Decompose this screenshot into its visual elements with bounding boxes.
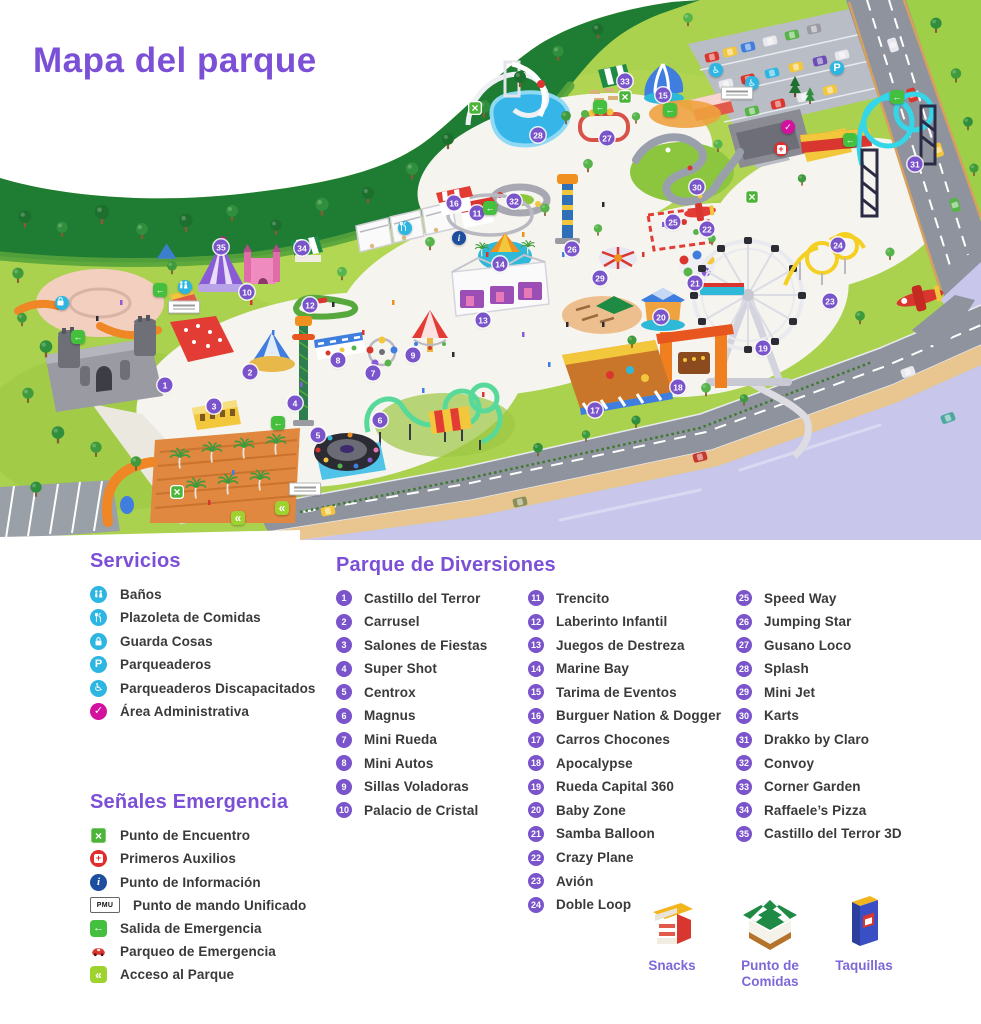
map-marker-29: 29 xyxy=(593,271,608,286)
map-marker-21: 21 xyxy=(688,276,703,291)
legend-item-area-administrativa: ✓Área Administrativa xyxy=(90,703,316,720)
ride-number-badge: 33 xyxy=(736,779,752,795)
banos-icon xyxy=(90,586,107,603)
ride-item-tarima-de-eventos: 15Tarima de Eventos xyxy=(528,684,736,700)
ride-item-rueda-capital-360: 19Rueda Capital 360 xyxy=(528,779,736,795)
map-marker-1: 1 xyxy=(158,378,173,393)
legend-item-plazoleta-de-comidas: Plazoleta de Comidas xyxy=(90,609,316,626)
ride-item-corner-garden: 33Corner Garden xyxy=(736,779,956,795)
servicios-heading: Servicios xyxy=(90,550,316,573)
ride-item-label: Drakko by Claro xyxy=(764,732,869,747)
map-salida-icon: ← xyxy=(271,416,285,430)
map-sign-icon xyxy=(168,301,200,314)
ride-item-label: Karts xyxy=(764,708,799,723)
ride-item-mini-rueda: 7Mini Rueda xyxy=(336,732,528,748)
ride-item-label: Laberinto Infantil xyxy=(556,614,667,629)
map-marker-10: 10 xyxy=(240,285,255,300)
map-marker-9: 9 xyxy=(406,348,421,363)
map-marker-12: 12 xyxy=(303,298,318,313)
map-marker-35: 35 xyxy=(214,240,229,255)
ride-number-badge: 13 xyxy=(528,637,544,653)
ride-item-laberinto-infantil: 12Laberinto Infantil xyxy=(528,614,736,630)
ride-item-label: Mini Autos xyxy=(364,756,434,771)
map-guarda-icon xyxy=(55,296,69,310)
map-auxilios-icon: + xyxy=(774,142,788,156)
auxilios-icon: + xyxy=(90,850,107,867)
map-sign-icon xyxy=(721,87,753,100)
map-marker-32: 32 xyxy=(507,194,522,209)
ride-number-badge: 9 xyxy=(336,779,352,795)
map-marker-6: 6 xyxy=(373,413,388,428)
ride-item-label: Palacio de Cristal xyxy=(364,803,478,818)
ride-item-super-shot: 4Super Shot xyxy=(336,661,528,677)
ride-item-magnus: 6Magnus xyxy=(336,708,528,724)
map-salida-icon: ← xyxy=(843,133,857,147)
snacks-icon xyxy=(647,896,697,950)
ride-item-mini-autos: 8Mini Autos xyxy=(336,755,528,771)
ride-number-badge: 23 xyxy=(528,873,544,889)
ride-item-mini-jet: 29Mini Jet xyxy=(736,684,956,700)
legend-atracciones: Parque de Diversiones 1Castillo del Terr… xyxy=(336,554,956,920)
legend-item-label: Plazoleta de Comidas xyxy=(120,610,261,625)
ride-item-label: Magnus xyxy=(364,708,416,723)
legend-item-parqueaderos-discapacitados: ♿Parqueaderos Discapacitados xyxy=(90,680,316,697)
legend-item-label: Parqueaderos xyxy=(120,657,211,672)
emergencia-heading: Señales Emergencia xyxy=(90,791,306,814)
kiosk-snacks-label: Snacks xyxy=(648,958,695,974)
map-marker-18: 18 xyxy=(671,380,686,395)
parqueadero-icon: P xyxy=(90,656,107,673)
ride-item-carrusel: 2Carrusel xyxy=(336,614,528,630)
map-encuentro-icon: × xyxy=(618,90,632,104)
map-discapacitados-icon: ♿ xyxy=(709,63,723,77)
ride-number-badge: 22 xyxy=(528,850,544,866)
ride-item-samba-balloon: 21Samba Balloon xyxy=(528,826,736,842)
map-marker-28: 28 xyxy=(531,128,546,143)
legend-item-label: Primeros Auxilios xyxy=(120,851,236,866)
salida-icon: ← xyxy=(90,920,107,937)
legend-item-banos: Baños xyxy=(90,586,316,603)
ride-item-label: Carrusel xyxy=(364,614,420,629)
map-marker-34: 34 xyxy=(295,241,310,256)
ride-item-label: Crazy Plane xyxy=(556,850,634,865)
ride-item-label: Burguer Nation & Dogger xyxy=(556,708,721,723)
legend-item-label: Salida de Emergencia xyxy=(120,921,262,936)
ride-item-raffaele-s-pizza: 34Raffaele’s Pizza xyxy=(736,802,956,818)
ride-number-badge: 20 xyxy=(528,802,544,818)
ride-number-badge: 4 xyxy=(336,661,352,677)
pmu-icon: PMU xyxy=(90,897,120,913)
ride-number-badge: 32 xyxy=(736,755,752,771)
legend-item-acceso-al-parque: «Acceso al Parque xyxy=(90,966,306,983)
ride-item-avion: 23Avión xyxy=(528,873,736,889)
map-marker-24: 24 xyxy=(831,238,846,253)
map-salida-icon: ← xyxy=(663,103,677,117)
legend-item-guarda-cosas: Guarda Cosas xyxy=(90,633,316,650)
legend-item-label: Área Administrativa xyxy=(120,704,249,719)
ride-item-splash: 28Splash xyxy=(736,661,956,677)
ride-item-gusano-loco: 27Gusano Loco xyxy=(736,637,956,653)
map-salida-icon: ← xyxy=(593,100,607,114)
map-marker-27: 27 xyxy=(600,131,615,146)
ride-item-centrox: 5Centrox xyxy=(336,684,528,700)
punto-comidas-icon xyxy=(741,898,799,950)
map-marker-13: 13 xyxy=(476,313,491,328)
ride-item-label: Avión xyxy=(556,874,594,889)
ride-number-badge: 18 xyxy=(528,755,544,771)
admin-icon: ✓ xyxy=(90,703,107,720)
ride-item-label: Splash xyxy=(764,661,809,676)
map-banos-icon xyxy=(178,280,192,294)
legend-emergencia: Señales Emergencia ×Punto de Encuentro+P… xyxy=(90,791,306,990)
legend-item-label: Acceso al Parque xyxy=(120,967,234,982)
ride-item-label: Castillo del Terror xyxy=(364,591,480,606)
map-marker-25: 25 xyxy=(666,215,681,230)
ride-number-badge: 6 xyxy=(336,708,352,724)
ride-item-label: Trencito xyxy=(556,591,609,606)
ride-item-trencito: 11Trencito xyxy=(528,590,736,606)
ride-item-label: Apocalypse xyxy=(556,756,633,771)
ride-item-juegos-de-destreza: 13Juegos de Destreza xyxy=(528,637,736,653)
ride-item-label: Doble Loop xyxy=(556,897,631,912)
map-encuentro-icon: × xyxy=(745,190,759,204)
ride-number-badge: 7 xyxy=(336,732,352,748)
map-marker-5: 5 xyxy=(311,428,326,443)
ride-number-badge: 15 xyxy=(528,684,544,700)
legend-item-label: Punto de Encuentro xyxy=(120,828,250,843)
ride-number-badge: 5 xyxy=(336,684,352,700)
map-marker-15: 15 xyxy=(656,88,671,103)
map-marker-22: 22 xyxy=(700,222,715,237)
map-marker-23: 23 xyxy=(823,294,838,309)
ride-number-badge: 14 xyxy=(528,661,544,677)
map-marker-31: 31 xyxy=(908,157,923,172)
ride-number-badge: 10 xyxy=(336,802,352,818)
ride-number-badge: 34 xyxy=(736,802,752,818)
taquillas-icon xyxy=(842,893,886,950)
ride-number-badge: 30 xyxy=(736,708,752,724)
ride-item-apocalypse: 18Apocalypse xyxy=(528,755,736,771)
ride-item-label: Tarima de Eventos xyxy=(556,685,677,700)
park-map-page: Mapa del parque xyxy=(0,0,981,1024)
ride-item-convoy: 32Convoy xyxy=(736,755,956,771)
map-marker-19: 19 xyxy=(756,341,771,356)
discapacitados-icon: ♿ xyxy=(90,680,107,697)
legend-item-label: Guarda Cosas xyxy=(120,634,213,649)
map-salida-icon: ← xyxy=(153,283,167,297)
ride-item-palacio-de-cristal: 10Palacio de Cristal xyxy=(336,802,528,818)
rides-column-1: 1Castillo del Terror2Carrusel3Salones de… xyxy=(336,590,528,826)
map-marker-20: 20 xyxy=(654,310,669,325)
ride-number-badge: 26 xyxy=(736,614,752,630)
ride-item-label: Corner Garden xyxy=(764,779,861,794)
legend-item-label: Parqueaderos Discapacitados xyxy=(120,681,316,696)
legend-item-parqueo-de-emergencia: Parqueo de Emergencia xyxy=(90,943,306,960)
map-marker-14: 14 xyxy=(493,257,508,272)
kiosk-snacks: Snacks xyxy=(630,896,714,974)
map-marker-7: 7 xyxy=(366,366,381,381)
ride-number-badge: 17 xyxy=(528,732,544,748)
ride-item-label: Raffaele’s Pizza xyxy=(764,803,866,818)
ride-item-label: Sillas Voladoras xyxy=(364,779,469,794)
ride-number-badge: 28 xyxy=(736,661,752,677)
legend-item-label: Parqueo de Emergencia xyxy=(120,944,276,959)
ride-number-badge: 3 xyxy=(336,637,352,653)
ride-item-label: Rueda Capital 360 xyxy=(556,779,674,794)
legend-item-label: Punto de mando Unificado xyxy=(133,898,306,913)
ride-number-badge: 21 xyxy=(528,826,544,842)
ride-number-badge: 16 xyxy=(528,708,544,724)
ride-number-badge: 1 xyxy=(336,590,352,606)
ride-item-karts: 30Karts xyxy=(736,708,956,724)
ride-item-crazy-plane: 22Crazy Plane xyxy=(528,850,736,866)
ride-item-label: Mini Rueda xyxy=(364,732,437,747)
map-marker-8: 8 xyxy=(331,353,346,368)
map-salida-icon: ← xyxy=(890,90,904,104)
map-marker-17: 17 xyxy=(588,403,603,418)
map-sign-icon xyxy=(289,483,321,496)
ride-number-badge: 24 xyxy=(528,897,544,913)
map-marker-30: 30 xyxy=(690,180,705,195)
legend-item-primeros-auxilios: +Primeros Auxilios xyxy=(90,850,306,867)
legend-item-salida-de-emergencia: ←Salida de Emergencia xyxy=(90,920,306,937)
ride-item-baby-zone: 20Baby Zone xyxy=(528,802,736,818)
ride-number-badge: 2 xyxy=(336,614,352,630)
ride-item-label: Speed Way xyxy=(764,591,836,606)
map-acceso-icon: « xyxy=(275,501,289,515)
atracciones-heading: Parque de Diversiones xyxy=(336,554,956,577)
ride-item-label: Juegos de Destreza xyxy=(556,638,685,653)
ride-item-salones-de-fiestas: 3Salones de Fiestas xyxy=(336,637,528,653)
ride-item-label: Baby Zone xyxy=(556,803,626,818)
map-comidas-icon xyxy=(398,221,412,235)
ride-number-badge: 19 xyxy=(528,779,544,795)
ride-item-jumping-star: 26Jumping Star xyxy=(736,614,956,630)
kiosk-taquillas-label: Taquillas xyxy=(835,958,893,974)
ride-item-label: Castillo del Terror 3D xyxy=(764,826,902,841)
ride-item-castillo-del-terror: 1Castillo del Terror xyxy=(336,590,528,606)
rides-column-2: 11Trencito12Laberinto Infantil13Juegos d… xyxy=(528,590,736,920)
map-salida-icon: ← xyxy=(483,201,497,215)
ride-item-label: Super Shot xyxy=(364,661,437,676)
ride-item-drakko-by-claro: 31Drakko by Claro xyxy=(736,732,956,748)
ride-number-badge: 31 xyxy=(736,732,752,748)
map-marker-16: 16 xyxy=(447,196,462,211)
parqueo_emergencia-icon xyxy=(90,943,107,960)
legend-item-punto-de-informacion: iPunto de Información xyxy=(90,874,306,891)
ride-number-badge: 27 xyxy=(736,637,752,653)
ride-item-label: Jumping Star xyxy=(764,614,851,629)
ride-item-label: Marine Bay xyxy=(556,661,629,676)
legend-item-punto-de-encuentro: ×Punto de Encuentro xyxy=(90,827,306,844)
comidas-icon xyxy=(90,609,107,626)
map-encuentro-icon: × xyxy=(170,485,184,499)
guarda-icon xyxy=(90,633,107,650)
map-marker-4: 4 xyxy=(288,396,303,411)
ride-number-badge: 29 xyxy=(736,684,752,700)
map-marker-2: 2 xyxy=(243,365,258,380)
map-informacion-icon: i xyxy=(452,231,466,245)
map-encuentro-icon: × xyxy=(468,101,482,115)
ride-item-label: Gusano Loco xyxy=(764,638,851,653)
kiosk-punto-comidas: Punto de Comidas xyxy=(728,898,812,990)
ride-item-marine-bay: 14Marine Bay xyxy=(528,661,736,677)
page-title: Mapa del parque xyxy=(33,41,317,81)
ride-item-burguer-nation-dogger: 16Burguer Nation & Dogger xyxy=(528,708,736,724)
map-marker-26: 26 xyxy=(565,242,580,257)
map-acceso-icon: « xyxy=(231,511,245,525)
ride-item-carros-chocones: 17Carros Chocones xyxy=(528,732,736,748)
informacion-icon: i xyxy=(90,874,107,891)
ride-item-castillo-del-terror-3d: 35Castillo del Terror 3D xyxy=(736,826,956,842)
ride-number-badge: 35 xyxy=(736,826,752,842)
map-admin-icon: ✓ xyxy=(781,120,795,134)
ride-item-sillas-voladoras: 9Sillas Voladoras xyxy=(336,779,528,795)
ride-item-label: Centrox xyxy=(364,685,416,700)
encuentro-icon: × xyxy=(90,827,107,844)
ride-item-label: Salones de Fiestas xyxy=(364,638,487,653)
ride-item-speed-way: 25Speed Way xyxy=(736,590,956,606)
kiosk-punto-comidas-label: Punto de Comidas xyxy=(733,958,807,990)
map-marker-3: 3 xyxy=(207,399,222,414)
ride-item-label: Mini Jet xyxy=(764,685,815,700)
ride-item-label: Carros Chocones xyxy=(556,732,670,747)
rides-column-3: 25Speed Way26Jumping Star27Gusano Loco28… xyxy=(736,590,956,850)
ride-number-badge: 12 xyxy=(528,614,544,630)
legend-item-label: Punto de Información xyxy=(120,875,261,890)
legend-item-parqueaderos: PParqueaderos xyxy=(90,656,316,673)
legend-item-punto-de-mando-unificado: PMUPunto de mando Unificado xyxy=(90,897,306,913)
legend-servicios: Servicios BañosPlazoleta de ComidasGuard… xyxy=(90,550,316,726)
map-parqueadero-icon: P xyxy=(830,61,844,75)
ride-number-badge: 25 xyxy=(736,590,752,606)
ride-item-label: Convoy xyxy=(764,756,814,771)
ride-item-label: Samba Balloon xyxy=(556,826,655,841)
map-marker-33: 33 xyxy=(618,74,633,89)
kiosk-taquillas: Taquillas xyxy=(822,893,906,974)
map-salida-icon: ← xyxy=(71,330,85,344)
ride-number-badge: 8 xyxy=(336,755,352,771)
acceso-icon: « xyxy=(90,966,107,983)
legend-item-label: Baños xyxy=(120,587,162,602)
ride-number-badge: 11 xyxy=(528,590,544,606)
